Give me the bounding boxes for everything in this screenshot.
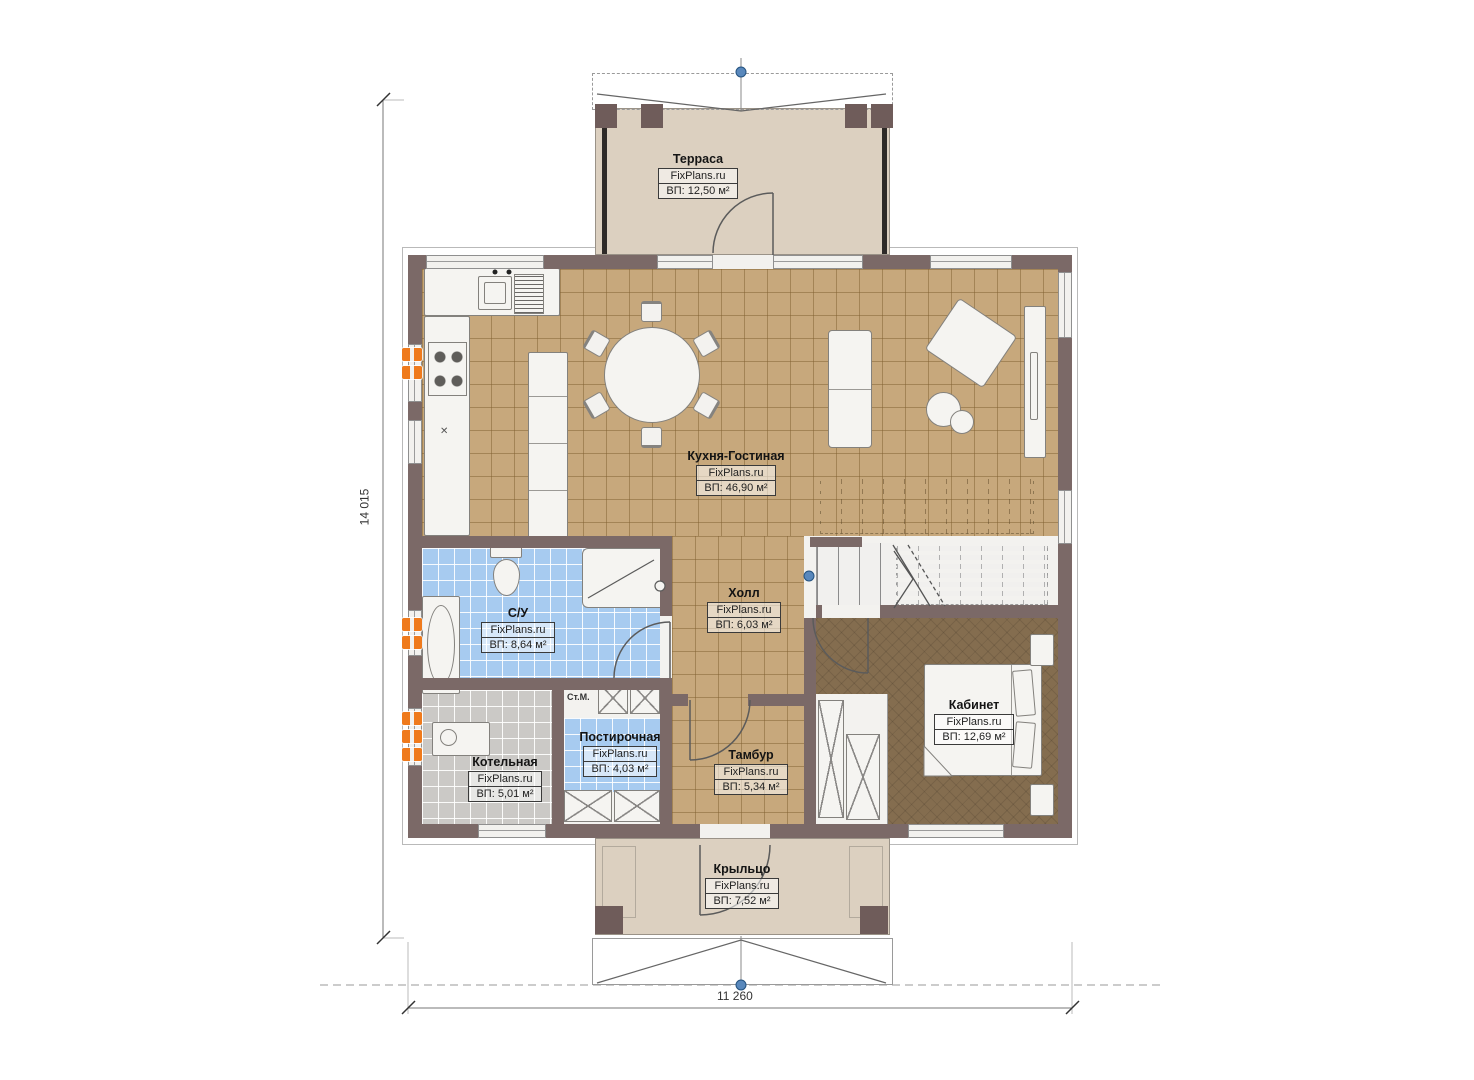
stairs-flight-above-dashed bbox=[820, 476, 1034, 534]
room-area: ВП: 12,69 м² bbox=[935, 730, 1012, 744]
porch-post bbox=[595, 906, 623, 934]
room-info-box: FixPlans.ru ВП: 12,69 м² bbox=[934, 714, 1013, 745]
room-info-box: FixPlans.ru ВП: 46,90 м² bbox=[696, 465, 775, 496]
room-info-box: FixPlans.ru ВП: 5,01 м² bbox=[468, 771, 541, 802]
room-label-hall: Холл FixPlans.ru ВП: 6,03 м² bbox=[688, 586, 800, 633]
dining-chair bbox=[641, 301, 662, 322]
kitchen-sink-basin bbox=[484, 282, 506, 304]
wall-hall-vestibule-left bbox=[672, 694, 688, 706]
room-name: Котельная bbox=[449, 755, 561, 769]
laundry-cabinet bbox=[564, 790, 612, 822]
room-area: ВП: 6,03 м² bbox=[708, 618, 779, 632]
wardrobe bbox=[818, 700, 844, 818]
window-top-terrace-right bbox=[773, 255, 863, 269]
room-brand: FixPlans.ru bbox=[659, 169, 736, 184]
room-brand: FixPlans.ru bbox=[482, 623, 553, 638]
dining-table bbox=[604, 327, 700, 423]
room-name: Крыльцо bbox=[686, 862, 798, 876]
room-info-box: FixPlans.ru ВП: 8,64 м² bbox=[481, 622, 554, 653]
radiator bbox=[402, 730, 422, 743]
room-brand: FixPlans.ru bbox=[715, 765, 786, 780]
room-name: С/У bbox=[462, 606, 574, 620]
window-bottom-boiler bbox=[478, 824, 546, 838]
room-info-box: FixPlans.ru ВП: 12,50 м² bbox=[658, 168, 737, 199]
terrace-post bbox=[641, 104, 663, 128]
dimension-height: 14 015 bbox=[357, 489, 371, 526]
dining-chair bbox=[641, 427, 662, 448]
window-right-living bbox=[1058, 272, 1072, 338]
terrace-post bbox=[845, 104, 867, 128]
side-table bbox=[950, 410, 974, 434]
room-area: ВП: 12,50 м² bbox=[659, 184, 736, 198]
room-info-box: FixPlans.ru ВП: 7,52 м² bbox=[705, 878, 778, 909]
window-top-terrace-left bbox=[657, 255, 713, 269]
shower-tray bbox=[582, 548, 668, 608]
window-left-bathroom bbox=[408, 610, 422, 656]
room-name: Терраса bbox=[638, 152, 758, 166]
room-area: ВП: 46,90 м² bbox=[697, 481, 774, 495]
radiator bbox=[402, 748, 422, 761]
porch-post bbox=[860, 906, 888, 934]
sofa bbox=[828, 330, 872, 448]
room-area: ВП: 8,64 м² bbox=[482, 638, 553, 652]
floor-plan-canvas: ✕ Ст.М. bbox=[0, 0, 1474, 1080]
radiator bbox=[402, 712, 422, 725]
wall-bathroom-top bbox=[422, 536, 672, 548]
room-label-office: Кабинет FixPlans.ru ВП: 12,69 м² bbox=[918, 698, 1030, 745]
room-brand: FixPlans.ru bbox=[706, 879, 777, 894]
terrace-column-line bbox=[882, 128, 887, 254]
room-brand: FixPlans.ru bbox=[469, 772, 540, 787]
room-info-box: FixPlans.ru ВП: 6,03 м² bbox=[707, 602, 780, 633]
terrace-column-line bbox=[602, 128, 607, 254]
dimension-line-vertical bbox=[377, 93, 404, 944]
room-name: Тамбур bbox=[695, 748, 807, 762]
room-name: Кабинет bbox=[918, 698, 1030, 712]
stairs-lower-flight bbox=[816, 543, 896, 605]
wall-office-top bbox=[880, 605, 1058, 618]
room-name: Холл bbox=[688, 586, 800, 600]
room-label-boiler: Котельная FixPlans.ru ВП: 5,01 м² bbox=[449, 755, 561, 802]
room-brand: FixPlans.ru bbox=[697, 466, 774, 481]
room-info-box: FixPlans.ru ВП: 4,03 м² bbox=[583, 746, 656, 777]
nightstand bbox=[1030, 784, 1054, 816]
terrace-post bbox=[595, 104, 617, 128]
window-right-stairs bbox=[1058, 490, 1072, 544]
window-top-living bbox=[930, 255, 1012, 269]
window-left-kitchen-2 bbox=[408, 420, 422, 464]
laundry-cabinet bbox=[614, 790, 660, 822]
room-area: ВП: 4,03 м² bbox=[584, 762, 655, 776]
nightstand bbox=[1030, 634, 1054, 666]
room-brand: FixPlans.ru bbox=[708, 603, 779, 618]
window-top-kitchen bbox=[426, 255, 544, 269]
terrace-door-opening bbox=[713, 255, 773, 269]
porch-canopy-outline bbox=[592, 938, 893, 985]
room-label-vestibule: Тамбур FixPlans.ru ВП: 5,34 м² bbox=[695, 748, 807, 795]
room-label-laundry: Постирочная FixPlans.ru ВП: 4,03 м² bbox=[564, 730, 676, 777]
stove-cooktop bbox=[428, 342, 467, 396]
radiator bbox=[402, 618, 422, 631]
boiler-dial bbox=[440, 729, 457, 746]
room-area: ВП: 5,01 м² bbox=[469, 787, 540, 801]
room-label-bathroom: С/У FixPlans.ru ВП: 8,64 м² bbox=[462, 606, 574, 653]
room-name: Постирочная bbox=[564, 730, 676, 744]
room-label-kitchen-living: Кухня-Гостиная FixPlans.ru ВП: 46,90 м² bbox=[676, 449, 796, 496]
wall-bathroom-right bbox=[660, 536, 672, 616]
wall-office-top-stub bbox=[816, 605, 822, 618]
counter-cross-symbol: ✕ bbox=[440, 426, 448, 437]
wall-bathroom-bottom bbox=[422, 678, 672, 690]
wardrobe bbox=[846, 734, 880, 820]
kitchen-dish-drainer bbox=[514, 274, 544, 314]
room-brand: FixPlans.ru bbox=[935, 715, 1012, 730]
radiator bbox=[402, 348, 422, 361]
room-info-box: FixPlans.ru ВП: 5,34 м² bbox=[714, 764, 787, 795]
stairs-upper-flight-cut bbox=[896, 543, 1048, 605]
room-brand: FixPlans.ru bbox=[584, 747, 655, 762]
tv-screen bbox=[1030, 352, 1038, 420]
kitchen-island bbox=[528, 352, 568, 538]
wall-stairs-stub bbox=[810, 537, 862, 547]
terrace-post bbox=[871, 104, 893, 128]
window-bottom-office bbox=[908, 824, 1004, 838]
bathtub-basin bbox=[427, 605, 455, 685]
room-label-porch: Крыльцо FixPlans.ru ВП: 7,52 м² bbox=[686, 862, 798, 909]
washing-machine-label: Ст.М. bbox=[567, 692, 590, 702]
wall-right bbox=[1058, 255, 1072, 838]
room-area: ВП: 7,52 м² bbox=[706, 894, 777, 908]
room-label-terrace: Терраса FixPlans.ru ВП: 12,50 м² bbox=[638, 152, 758, 199]
wall-hall-vestibule-right bbox=[748, 694, 804, 706]
dimension-width: 11 260 bbox=[717, 989, 753, 1003]
radiator bbox=[402, 366, 422, 379]
radiator bbox=[402, 636, 422, 649]
room-name: Кухня-Гостиная bbox=[676, 449, 796, 463]
entrance-door-opening bbox=[700, 824, 770, 838]
room-area: ВП: 5,34 м² bbox=[715, 780, 786, 794]
